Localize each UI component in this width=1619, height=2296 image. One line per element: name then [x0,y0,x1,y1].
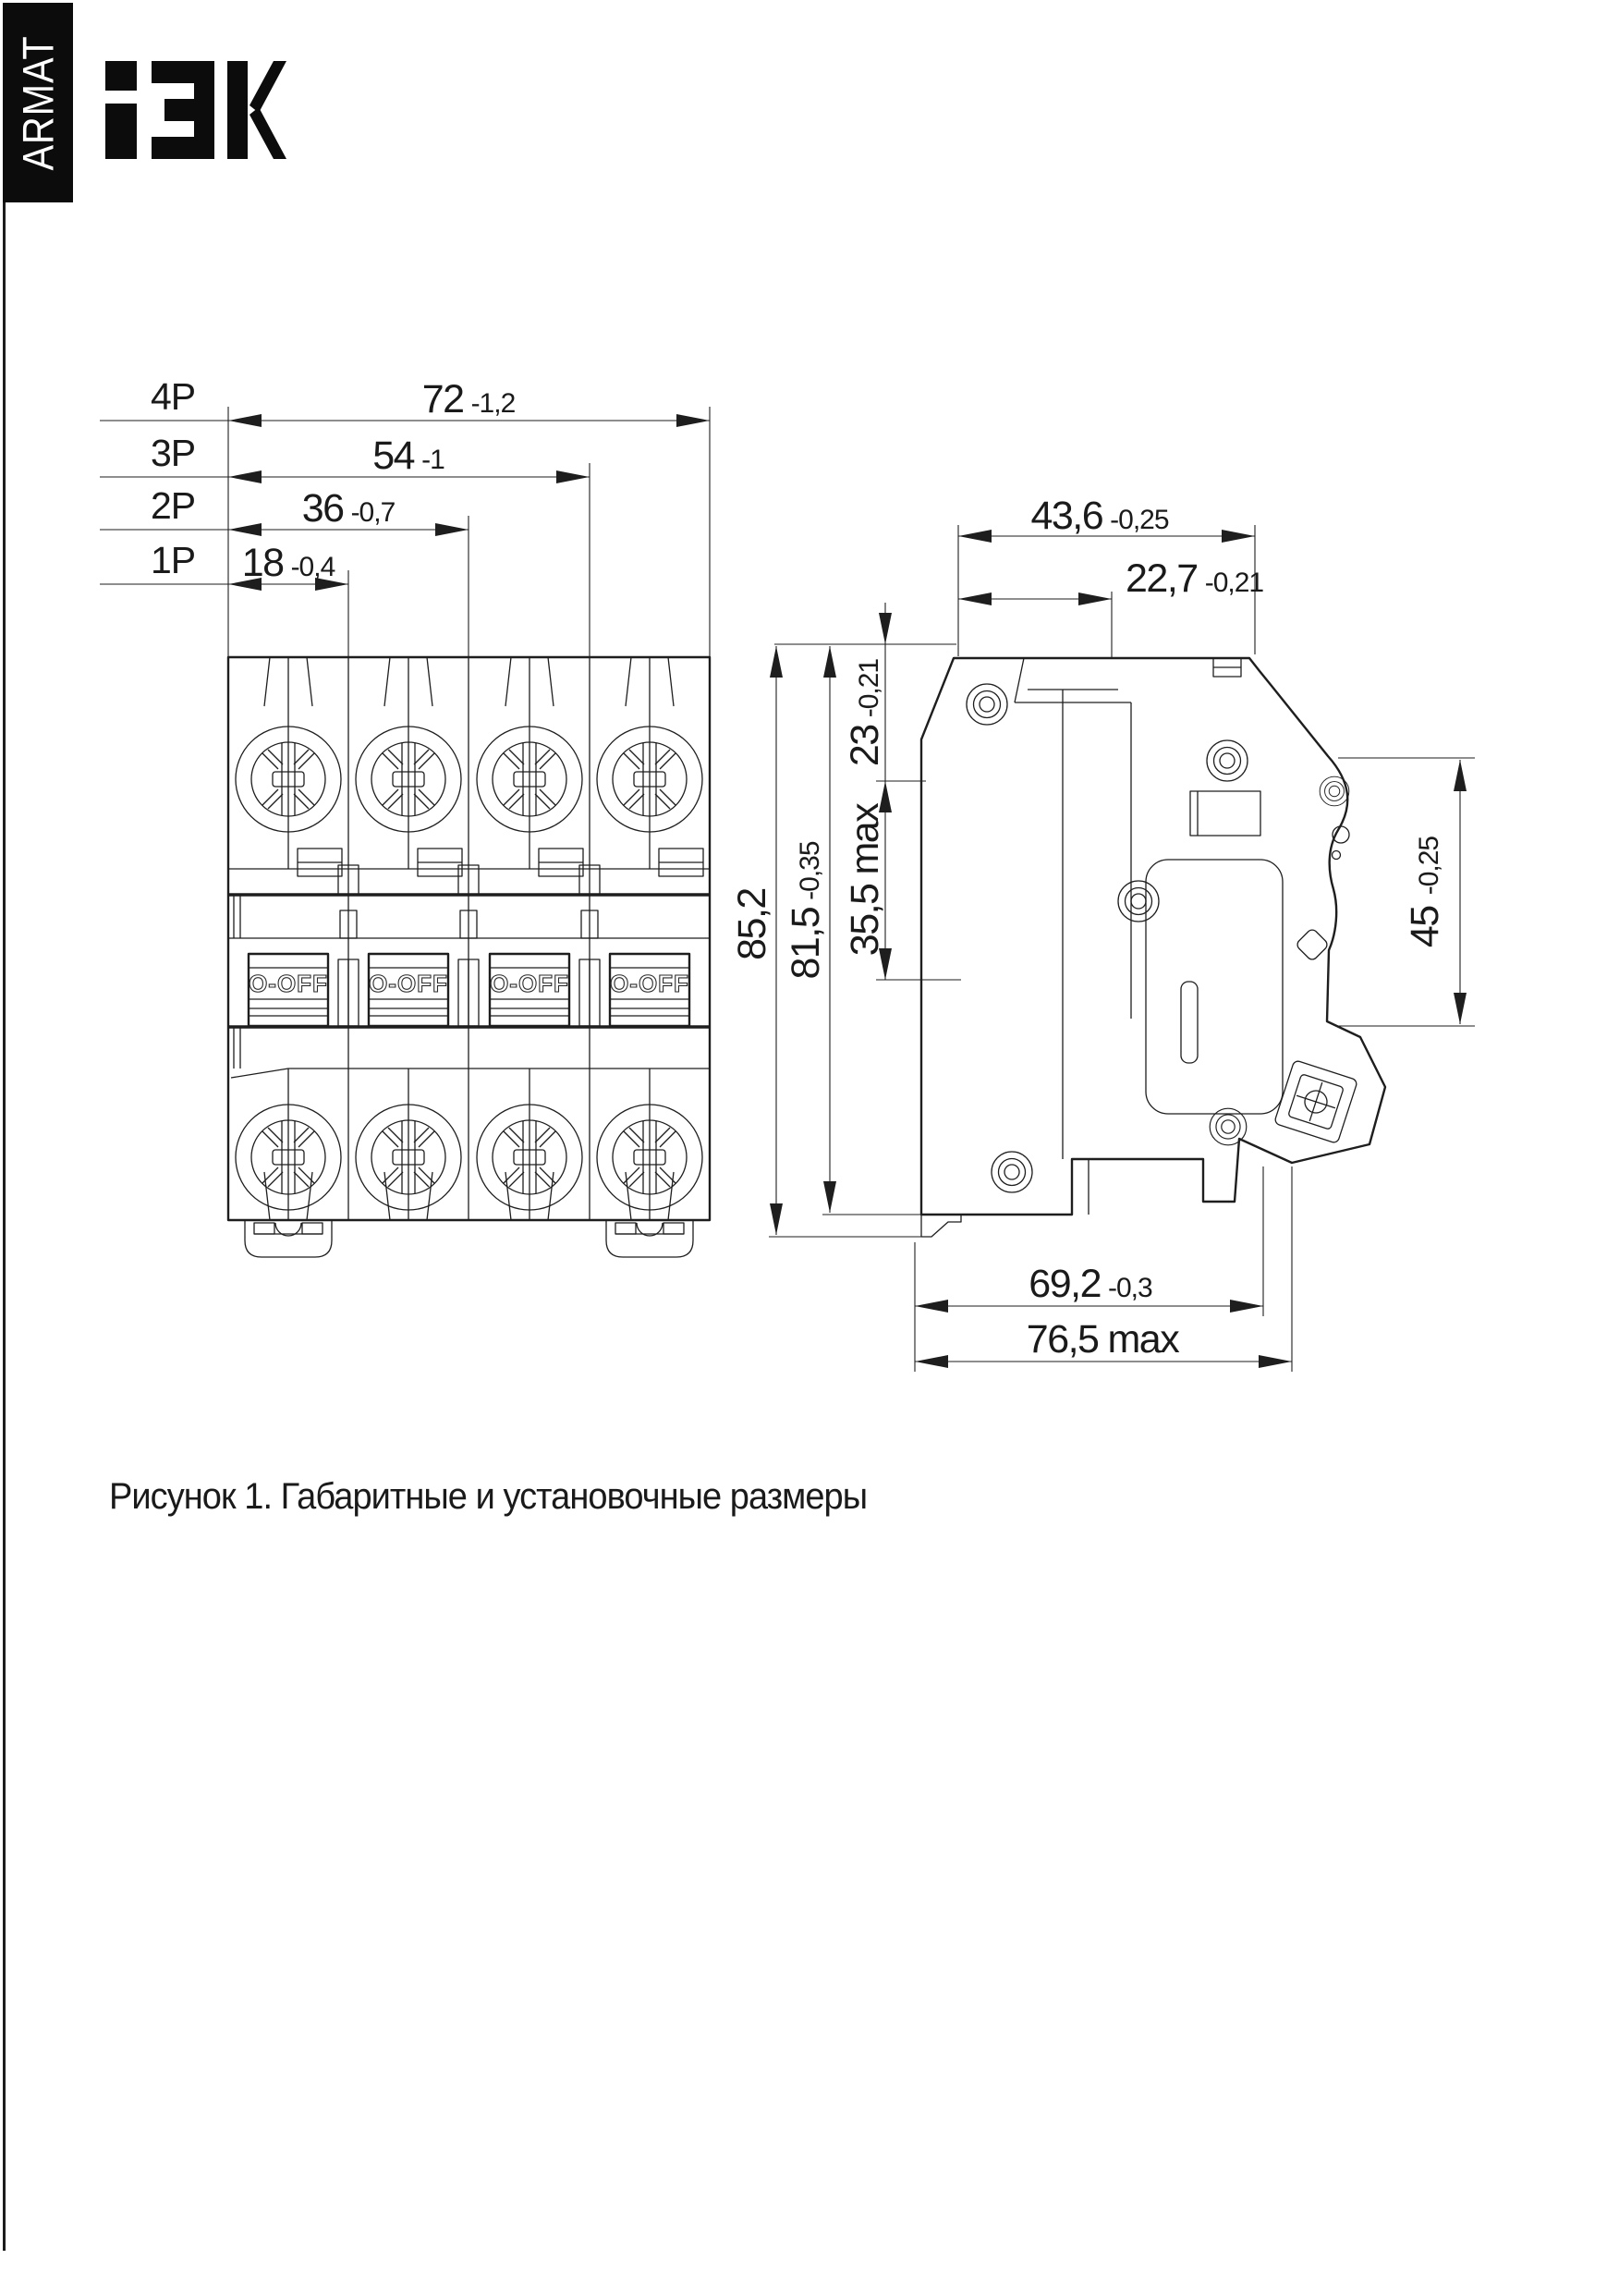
figure-caption: Рисунок 1. Габаритные и установочные раз… [109,1476,867,1518]
dim-text-35-5: 35,5max [843,802,887,956]
dim-text-85-2: 85,2 [730,888,774,960]
toggle-pole-2: O-OFF [369,954,448,1026]
dim-text-81-5: 81,5-0,35 [784,841,828,979]
mounting-foot-right [606,1220,693,1257]
side-view: 43,6-0,25 22,7-0,21 23-0,21 [730,494,1475,1372]
toggle-pole-3: O-OFF [490,954,569,1026]
dimension-1p: 1P 18-0,4 [100,539,348,591]
front-toggle-handles: O-OFF O-OFF O-OFF O- [228,954,710,1027]
dim-text-54: 54-1 [372,434,444,478]
dim-text-45: 45-0,25 [1403,837,1447,948]
dimension-4p: 4P 72-1,2 [100,375,710,427]
side-interior-detail [921,658,1349,1237]
front-extension-lines [228,407,710,657]
pole-label-3p: 3P [151,432,195,474]
toggle-pole-4: O-OFF [610,954,689,1026]
front-breaker-body: O-OFF O-OFF O-OFF O- [228,657,710,1257]
datasheet-page: ARMAT [0,0,1619,2296]
side-dimensions: 43,6-0,25 22,7-0,21 23-0,21 [730,494,1475,1372]
dim-text-69-2: 69,2-0,3 [1029,1262,1152,1306]
dim-text-22-7: 22,7-0,21 [1126,556,1263,601]
dim-text-72: 72-1,2 [422,377,516,421]
dim-text-23: 23-0,21 [843,659,887,767]
mounting-foot-left [245,1220,332,1257]
pole-label-1p: 1P [151,539,195,581]
toggle-label: O-OFF [610,970,689,997]
dimension-2p: 2P 36-0,7 [100,484,469,536]
front-view: 4P 72-1,2 3P 54-1 2P 36-0,7 [100,375,710,1257]
toggle-label: O-OFF [249,970,328,997]
dimension-3p: 3P 54-1 [100,432,590,483]
dim-text-76-5: 76,5max [1027,1317,1180,1362]
dimension-handle-offset: 22,7-0,21 [958,556,1263,658]
pole-label-2p: 2P [151,484,195,527]
dim-text-43-6: 43,6-0,25 [1030,494,1168,538]
toggle-label: O-OFF [490,970,569,997]
toggle-pole-1: O-OFF [249,954,328,1026]
side-rivets [967,684,1349,1192]
side-body-outline [921,658,1385,1215]
pole-label-4p: 4P [151,375,195,418]
technical-drawing: 4P 72-1,2 3P 54-1 2P 36-0,7 [0,0,1619,2296]
dim-text-18: 18-0,4 [242,541,335,585]
toggle-label: O-OFF [369,970,448,997]
dimension-boss-zone: 35,5max [843,802,961,980]
dim-text-36: 36-0,7 [302,486,396,531]
terminal-clamp-screw [1274,1060,1358,1144]
dimension-front-face: 45-0,25 [1338,758,1475,1026]
front-pole-dimensions: 4P 72-1,2 3P 54-1 2P 36-0,7 [100,375,710,657]
front-bottom-terminals [231,1027,710,1220]
